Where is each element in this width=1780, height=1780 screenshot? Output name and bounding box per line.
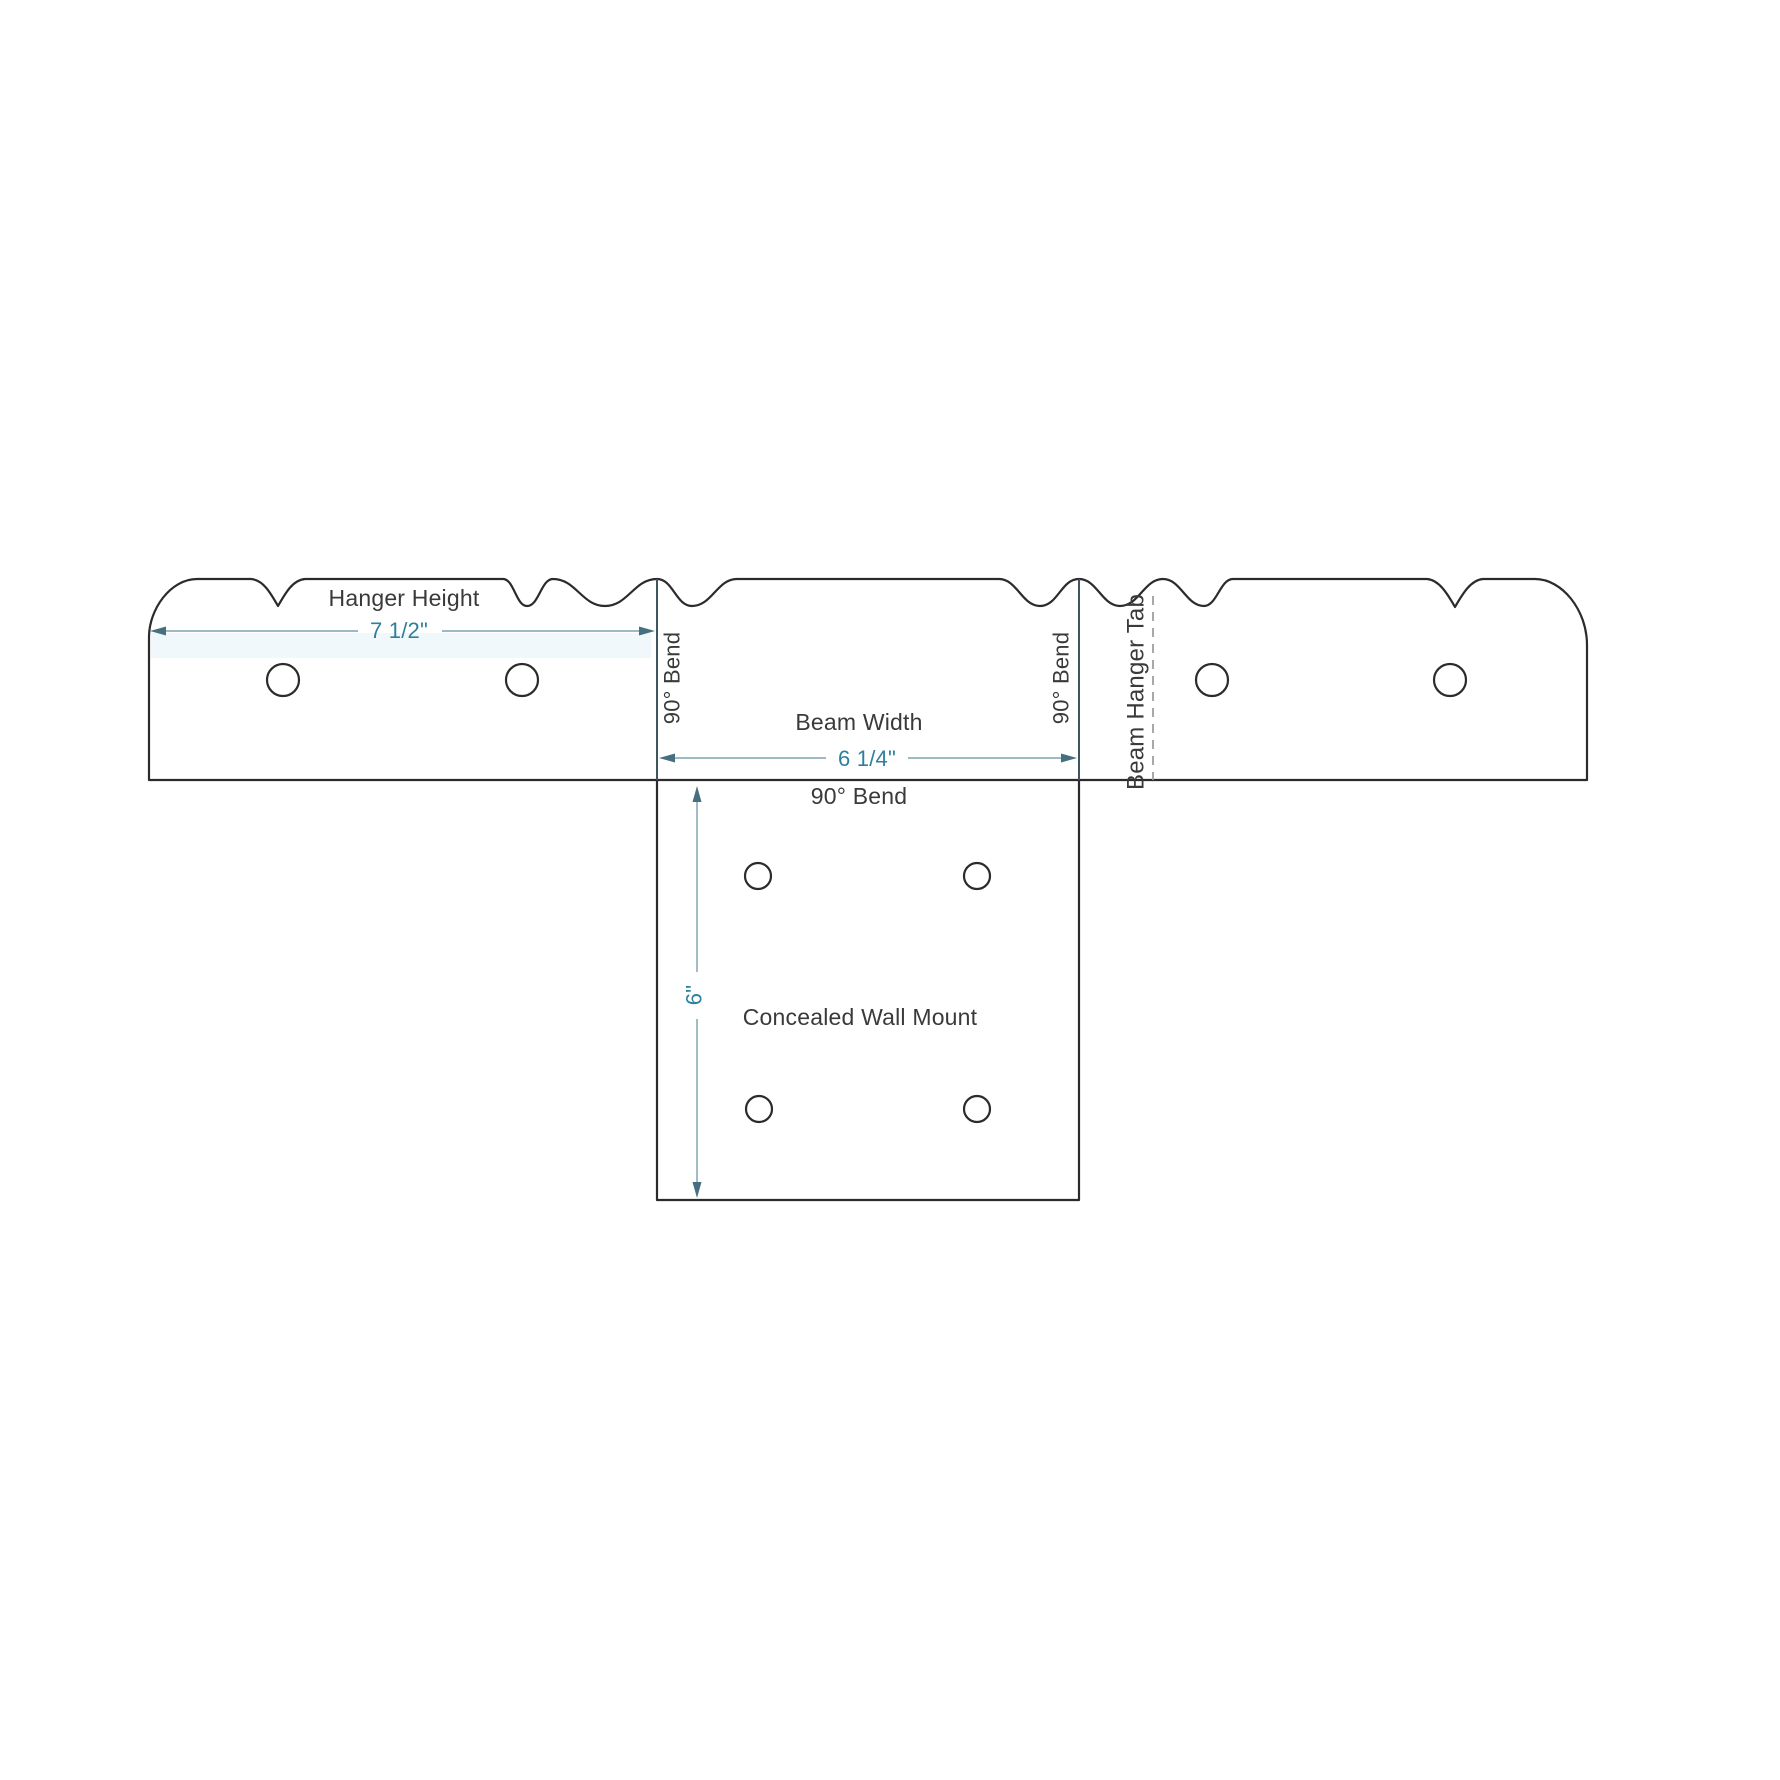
bolt-hole	[1196, 664, 1228, 696]
dimension-arrow-left	[659, 754, 675, 763]
hanger-height-label: Hanger Height	[329, 585, 480, 611]
drawing-sheet: 7 1/2" Hanger Height Beam Width 6 1/4" 6…	[0, 0, 1780, 1780]
bolt-hole	[964, 1096, 990, 1122]
technical-drawing: 7 1/2" Hanger Height Beam Width 6 1/4" 6…	[0, 0, 1780, 1780]
bolt-hole	[1434, 664, 1466, 696]
bolt-hole	[964, 863, 990, 889]
wall-mount-plate-outline	[657, 780, 1079, 1200]
bolt-hole	[746, 1096, 772, 1122]
bend-left-label: 90° Bend	[660, 632, 685, 724]
bolt-hole	[267, 664, 299, 696]
flat-pattern	[149, 579, 1587, 1200]
bolt-hole	[745, 863, 771, 889]
bolt-hole	[506, 664, 538, 696]
dimension-mount-height: 6"	[682, 786, 707, 1198]
dimension-arrow-right	[1061, 754, 1077, 763]
beam-width-value: 6 1/4"	[838, 746, 896, 771]
beam-hanger-tab-label: Beam Hanger Tab	[1123, 594, 1150, 790]
dimension-arrow-bottom	[693, 1182, 702, 1198]
wall-mount-label: Concealed Wall Mount	[743, 1004, 978, 1030]
dimension-beam-width: 6 1/4"	[659, 746, 1077, 771]
bend-right-label: 90° Bend	[1049, 632, 1074, 724]
beam-width-label: Beam Width	[795, 709, 922, 735]
mount-height-value: 6"	[682, 985, 707, 1005]
dimension-arrow-top	[693, 786, 702, 802]
hanger-height-value: 7 1/2"	[370, 618, 428, 643]
bend-bottom-label: 90° Bend	[811, 783, 908, 809]
